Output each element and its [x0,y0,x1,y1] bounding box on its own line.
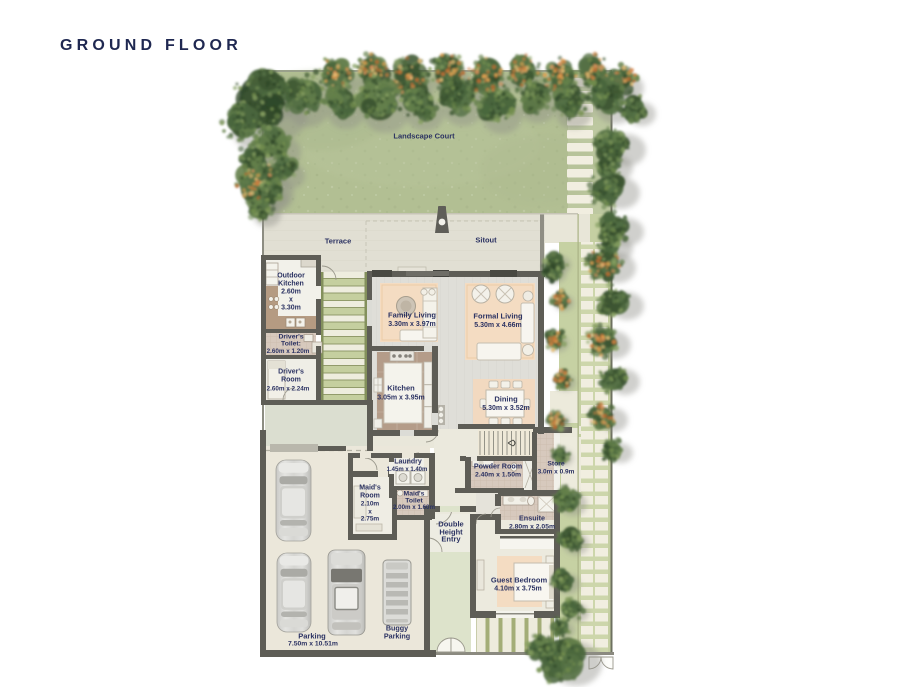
svg-text:Laundry: Laundry [394,459,422,466]
svg-text:Entry: Entry [441,535,461,544]
svg-text:Store: Store [547,460,565,467]
svg-text:Guest Bedroom: Guest Bedroom [491,576,548,585]
svg-text:x: x [368,508,372,515]
svg-text:Family Living: Family Living [388,311,436,320]
svg-text:2.60m x 2.24m: 2.60m x 2.24m [267,385,310,392]
svg-text:Driver's: Driver's [278,369,304,376]
svg-text:Room: Room [360,493,380,500]
svg-text:Maid's: Maid's [359,485,381,492]
svg-text:x: x [289,297,293,304]
svg-text:2.60m x 1.20m: 2.60m x 1.20m [267,348,310,355]
svg-text:5.30m x 3.52m: 5.30m x 3.52m [482,405,529,412]
svg-text:Ensuite: Ensuite [519,514,545,523]
svg-text:4.10m x 3.75m: 4.10m x 3.75m [494,586,541,593]
svg-text:3.30m x 3.97m: 3.30m x 3.97m [388,321,435,328]
svg-text:2.75m: 2.75m [361,515,380,522]
svg-text:Kitchen: Kitchen [278,281,304,288]
svg-text:Driver's: Driver's [278,333,303,340]
svg-text:1.45m x 1.40m: 1.45m x 1.40m [387,467,428,473]
svg-text:3.05m x 3.95m: 3.05m x 3.95m [377,395,424,402]
svg-text:Outdoor: Outdoor [277,273,305,280]
svg-text:Parking: Parking [298,632,326,641]
svg-text:Room: Room [281,377,301,384]
svg-text:2.00m x 1.60m: 2.00m x 1.60m [393,504,435,511]
svg-text:Sitout: Sitout [475,236,497,245]
svg-text:2.80m x 2.05m: 2.80m x 2.05m [509,523,555,530]
svg-text:Landscape Court: Landscape Court [393,132,455,141]
svg-text:Terrace: Terrace [325,237,352,246]
svg-text:Parking: Parking [384,632,410,641]
svg-text:2.40m x 1.50m: 2.40m x 1.50m [475,471,521,478]
svg-text:Dining: Dining [494,395,518,404]
svg-text:2.60m: 2.60m [281,289,301,296]
svg-text:2.10m: 2.10m [361,500,380,507]
svg-text:Toilet:: Toilet: [281,340,301,347]
svg-text:7.50m x 10.51m: 7.50m x 10.51m [288,640,338,647]
svg-text:Powder Room: Powder Room [474,462,522,471]
svg-text:5.30m x 4.66m: 5.30m x 4.66m [474,322,521,329]
svg-text:Kitchen: Kitchen [387,384,415,393]
svg-text:Maid's: Maid's [404,490,425,497]
svg-text:3.0m x 0.9m: 3.0m x 0.9m [538,468,575,475]
svg-text:3.30m: 3.30m [281,305,301,312]
svg-text:Formal Living: Formal Living [473,312,523,321]
